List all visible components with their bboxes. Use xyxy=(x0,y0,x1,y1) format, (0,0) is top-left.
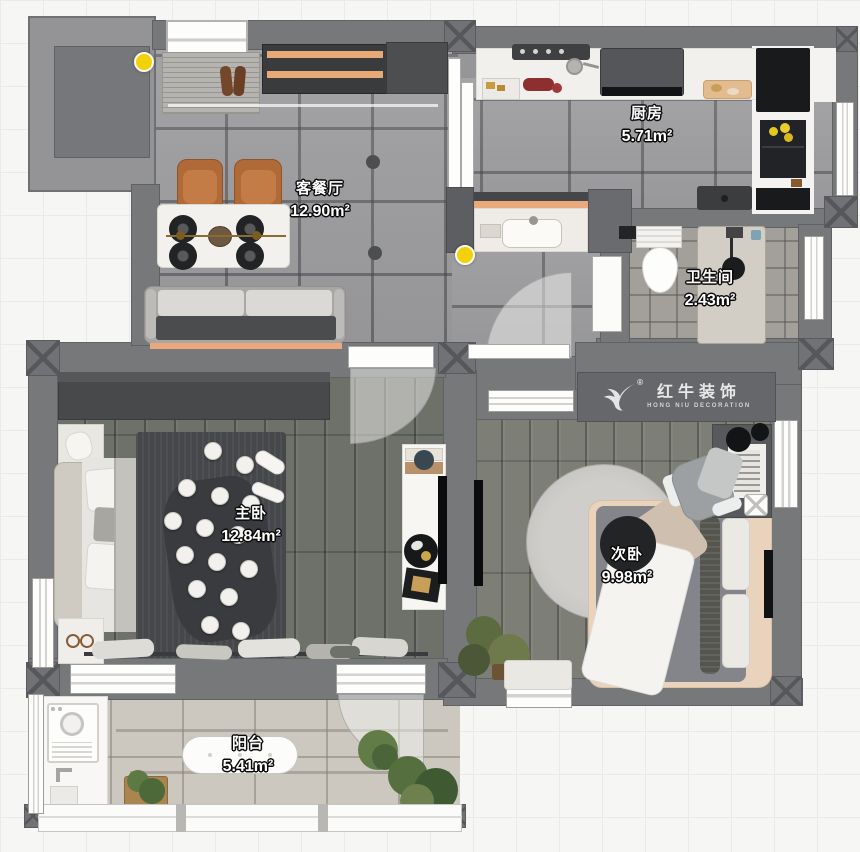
room-label-balcony: 阳台 5.41m² xyxy=(223,736,274,775)
wood-item xyxy=(791,179,802,187)
bedroom2-window xyxy=(774,420,798,508)
tray-cup xyxy=(421,551,431,561)
room-label-bathroom: 卫生间 2.43m² xyxy=(685,270,736,309)
hood-knob xyxy=(533,49,538,54)
rod-knob xyxy=(252,231,261,240)
stove-front xyxy=(602,87,682,96)
room-area: 9.98m² xyxy=(602,570,653,586)
window-divider xyxy=(176,804,186,832)
registered-mark: ® xyxy=(637,378,643,387)
wall-tv xyxy=(438,476,447,584)
string-light xyxy=(196,519,214,537)
shoe-cabinet-shelf xyxy=(267,51,383,58)
room-name: 主卧 xyxy=(235,506,267,521)
room-name: 次卧 xyxy=(611,547,643,562)
serving-tray xyxy=(404,534,438,568)
logo-name-en: HONG NIU DECORATION xyxy=(647,403,751,409)
washer-vent xyxy=(52,742,92,758)
room-label-living-dining: 客餐厅 12.90m² xyxy=(290,181,350,220)
potted-plant xyxy=(139,778,165,804)
string-light xyxy=(211,487,229,505)
bed2-pillow xyxy=(722,518,750,590)
pillar xyxy=(836,26,858,52)
dining-chair-seat xyxy=(241,170,276,204)
light-indicator-dot xyxy=(455,245,475,265)
faucet xyxy=(529,216,538,225)
light-indicator-dot xyxy=(134,52,154,72)
string-light xyxy=(240,560,258,578)
side-stool xyxy=(744,494,768,516)
desk-lamp xyxy=(751,423,769,441)
lemon xyxy=(780,123,790,133)
photo-frame-inner xyxy=(411,576,431,594)
red-bowl xyxy=(552,83,562,93)
eyeglasses-decor xyxy=(66,634,80,648)
pillar xyxy=(798,338,834,370)
floor-spotlight xyxy=(368,246,382,260)
pillar xyxy=(770,676,802,706)
clothes-pile xyxy=(176,644,232,660)
appliance-detail xyxy=(486,82,495,89)
sofa-cushion xyxy=(246,290,332,316)
washer-drum xyxy=(60,712,84,736)
bedside-mat xyxy=(504,660,572,690)
clothes-pile xyxy=(92,638,155,659)
string-light xyxy=(188,580,206,598)
hood-knob xyxy=(546,49,551,54)
bread xyxy=(711,84,722,92)
string-light xyxy=(201,616,219,634)
bathroom-door-leaf xyxy=(468,344,570,359)
vanity-orange-edge xyxy=(458,201,590,208)
kitchen-low-cabinet xyxy=(756,188,810,210)
bread xyxy=(727,88,739,95)
window-divider xyxy=(318,804,328,832)
floor-plan: ® 红牛装饰 HONG NIU DECORATION xyxy=(0,0,860,852)
lemon xyxy=(784,133,793,142)
room-name: 卫生间 xyxy=(686,270,734,285)
sofa-trim xyxy=(150,343,342,349)
room-label-master-bedroom: 主卧 12.84m² xyxy=(221,506,281,545)
wall-tv xyxy=(474,480,483,586)
place-setting xyxy=(236,215,264,243)
washer-knob xyxy=(51,707,55,711)
master-left-window xyxy=(32,578,54,668)
room-name: 阳台 xyxy=(232,736,264,751)
washer-knob xyxy=(58,707,62,711)
toilet-flush-box xyxy=(619,226,636,239)
floor-drain xyxy=(751,230,761,240)
shower-fixture xyxy=(726,227,743,238)
sofa-cushion xyxy=(158,290,244,316)
bedroom2-transom xyxy=(488,390,574,412)
balcony-window-band xyxy=(38,804,462,832)
balcony-door-opening xyxy=(336,664,426,694)
oven-shelf xyxy=(762,146,804,148)
hongniu-bull-icon: ® xyxy=(602,382,638,412)
string-light xyxy=(208,553,226,571)
sofa-armrest xyxy=(146,289,156,339)
string-light xyxy=(204,442,222,460)
room-name: 客餐厅 xyxy=(296,181,344,196)
master-bed-headboard xyxy=(54,462,84,628)
clothes-pile xyxy=(238,638,301,658)
ceiling-beam-line xyxy=(168,104,438,107)
faucet-pipe xyxy=(56,768,60,782)
soap-tray xyxy=(480,224,501,238)
room-area: 5.41m² xyxy=(223,759,274,775)
string-light xyxy=(164,512,182,530)
room-name: 厨房 xyxy=(631,106,663,121)
logo-banner: ® 红牛装饰 HONG NIU DECORATION xyxy=(577,372,776,422)
shoe-cabinet-shelf xyxy=(267,71,383,78)
toilet-tank xyxy=(636,226,682,248)
bathroom-window xyxy=(804,236,824,320)
vanity-side-wall xyxy=(446,187,474,253)
room-area: 12.84m² xyxy=(221,529,281,545)
dining-chair-seat xyxy=(183,170,217,204)
hood-knob xyxy=(520,49,525,54)
sofa-back xyxy=(156,316,336,340)
place-setting xyxy=(169,242,197,270)
vanity-side-wall xyxy=(588,189,632,253)
room-label-kitchen: 厨房 5.71m² xyxy=(622,106,673,145)
pillar xyxy=(824,196,858,228)
room-area: 12.90m² xyxy=(290,204,350,220)
clothes-pile xyxy=(352,637,409,658)
string-light xyxy=(178,479,196,497)
hall-cabinet xyxy=(386,42,448,94)
bathroom-door-panel xyxy=(592,256,622,332)
string-light xyxy=(176,546,194,564)
clothes-pile xyxy=(330,646,360,658)
desk-plate xyxy=(414,450,434,470)
master-balcony-window xyxy=(70,664,176,694)
counter-side xyxy=(810,48,836,102)
kitchen-sliding-door-panel xyxy=(448,58,461,190)
logo-name-cn: 红牛装饰 xyxy=(657,385,741,401)
potted-plant xyxy=(458,644,490,676)
string-light xyxy=(220,588,238,606)
red-pot xyxy=(523,78,554,91)
pillar xyxy=(444,20,476,52)
rack-dot xyxy=(208,753,212,757)
hood-knob xyxy=(559,49,564,54)
room-area: 5.71m² xyxy=(622,129,673,145)
lemon xyxy=(769,127,778,136)
place-setting xyxy=(236,242,264,270)
sink-drain xyxy=(721,195,728,202)
master-wardrobe-top xyxy=(58,372,330,382)
logo-text: 红牛装饰 HONG NIU DECORATION xyxy=(647,385,751,409)
room-area: 2.43m² xyxy=(685,293,736,309)
frying-pan xyxy=(566,58,583,75)
floor-spotlight xyxy=(366,155,380,169)
rod-knob xyxy=(176,231,185,240)
wall-tv xyxy=(764,550,773,618)
kitchen-window xyxy=(836,102,854,196)
master-door-leaf xyxy=(348,346,434,368)
balcony-left-window xyxy=(28,694,44,814)
pillar xyxy=(26,340,60,376)
desk-speaker xyxy=(726,427,751,452)
appliance-detail xyxy=(497,85,505,91)
string-light xyxy=(232,622,250,640)
balcony-window-rail xyxy=(38,816,462,818)
bed2-pillow xyxy=(722,594,750,668)
room-label-second-bedroom: 次卧 9.98m² xyxy=(602,547,653,586)
refrigerator xyxy=(756,48,810,112)
string-light xyxy=(236,456,254,474)
